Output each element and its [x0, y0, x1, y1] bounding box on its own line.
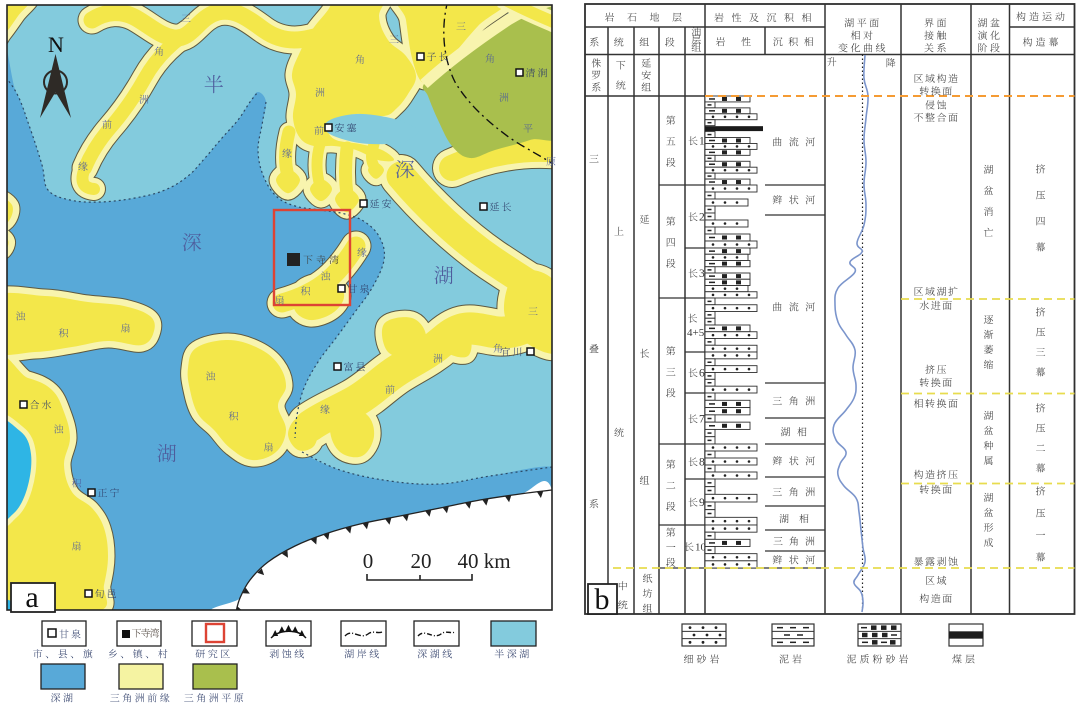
svg-text:N: N: [48, 32, 64, 57]
svg-text:7: 7: [699, 414, 705, 426]
svg-text:40 km: 40 km: [457, 549, 510, 573]
svg-text:0: 0: [363, 549, 374, 573]
svg-text:1: 1: [699, 136, 705, 148]
svg-text:6: 6: [699, 368, 705, 380]
svg-text:20: 20: [411, 549, 432, 573]
svg-text:9: 9: [699, 497, 705, 509]
svg-text:3: 3: [699, 268, 705, 280]
svg-text:b: b: [595, 583, 610, 616]
svg-text:2: 2: [699, 212, 705, 224]
svg-text:4+5: 4+5: [687, 327, 705, 339]
svg-text:a: a: [25, 581, 38, 614]
svg-text:10: 10: [695, 542, 707, 554]
svg-text:8: 8: [699, 457, 705, 469]
